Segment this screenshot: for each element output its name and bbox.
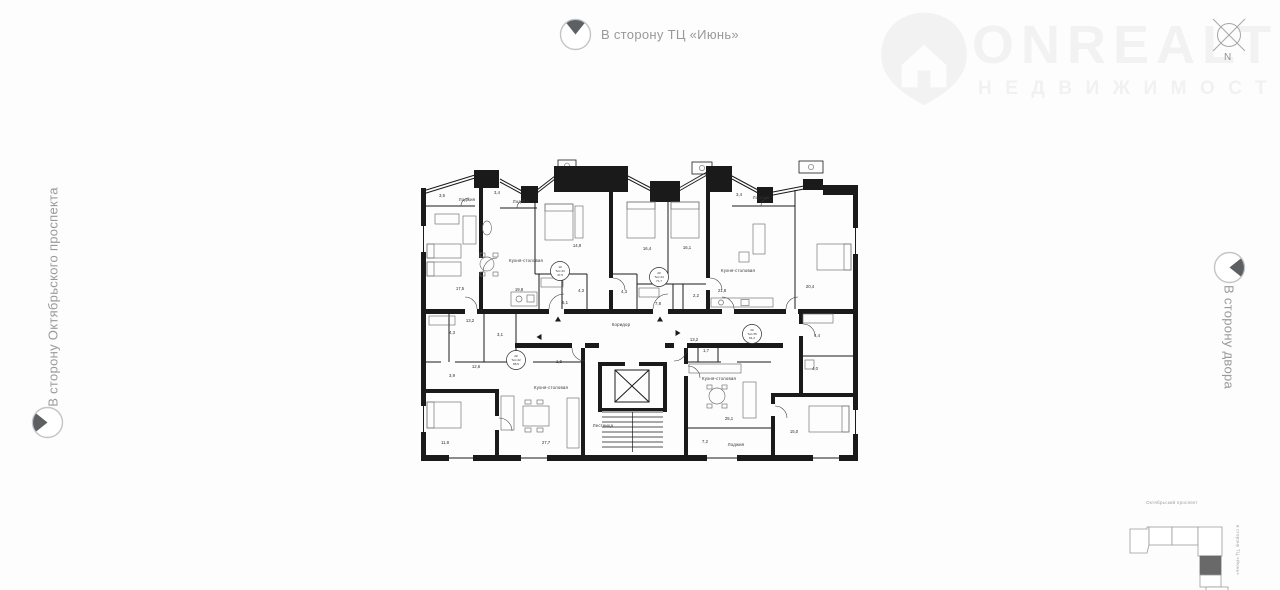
entry-arrow-up: [657, 317, 663, 322]
elevator: [615, 370, 649, 402]
minimap-street-label: Октябрьский проспект: [1146, 500, 1198, 505]
room-area-label: 17,5: [456, 286, 465, 291]
minimap-segment[interactable]: [1172, 527, 1198, 545]
minimap-segment[interactable]: [1130, 527, 1149, 553]
room-area-label: 13,2: [690, 337, 699, 342]
room-name-label: Коридор: [612, 322, 631, 327]
floor-plan[interactable]: 3,5Лоджия3,4Лоджия17,5Кухня-столовая19,8…: [421, 158, 858, 462]
entry-arrow-up: [555, 317, 561, 322]
minimap-side-label: в сторону ТЦ «Июнь»: [1236, 525, 1241, 575]
room-area-label: 4,4: [814, 333, 821, 338]
room-area-label: 13,2: [466, 318, 475, 323]
room-name-label: Кухня-столовая: [702, 376, 736, 381]
room-area-label: 19,8: [515, 287, 524, 292]
room-name-label: Лоджия: [753, 195, 770, 200]
apartment-tag-line: 81,2: [749, 336, 755, 340]
room-name-label: Лоджия: [459, 197, 476, 202]
apartment-tag[interactable]: 1КТип 3347,5: [551, 262, 570, 281]
minimap-segment[interactable]: [1200, 575, 1221, 587]
compass-icon: N: [1204, 12, 1254, 66]
room-area-label: 7,2: [702, 439, 709, 444]
room-area-label: 12,6: [472, 364, 481, 369]
direction-icon-left: [31, 406, 64, 439]
room-area-label: 4,3: [449, 330, 456, 335]
room-area-label: 11,8: [441, 440, 450, 445]
room-area-label: 2,2: [693, 293, 700, 298]
apartment-tag[interactable]: 2КТип 3581,2: [743, 325, 762, 344]
minimap-segment-active[interactable]: [1200, 556, 1221, 575]
room-name-label: Кухня-столовая: [534, 385, 568, 390]
plan-door-gaps: [421, 226, 858, 461]
room-area-label: 14,9: [573, 243, 582, 248]
room-area-label: 4,3: [578, 288, 585, 293]
direction-icon-right: [1213, 251, 1246, 284]
room-area-label: 4,0: [812, 366, 819, 371]
direction-label-left: В сторону Октябрьского проспекта: [46, 187, 61, 407]
room-area-label: 1,9: [556, 359, 563, 364]
room-area-label: 15,0: [790, 429, 799, 434]
room-area-label: 27,7: [542, 440, 551, 445]
room-area-label: 4,3: [621, 289, 628, 294]
room-area-label: 25,1: [725, 416, 734, 421]
room-area-label: 3,4: [494, 190, 501, 195]
staircase: [602, 412, 663, 452]
brand-subtitle: НЕДВИЖИМОСТЬ: [978, 78, 1280, 100]
plan-entry-arrows: [537, 317, 681, 341]
entry-arrow-right: [676, 330, 681, 336]
room-area-label: 1,7: [703, 348, 710, 353]
apartment-tag[interactable]: 2КТип 3286,5: [507, 351, 526, 370]
room-area-label: 3,5: [439, 193, 446, 198]
minimap-segment[interactable]: [1149, 527, 1172, 545]
room-name-label: Лестница: [593, 423, 614, 428]
apartment-tag-line: 86,5: [513, 362, 519, 366]
room-name-label: Кухня-столовая: [509, 258, 543, 263]
room-name-label: Лоджия: [513, 199, 530, 204]
apartment-tag-line: 71,7: [656, 279, 662, 283]
compass-north-label: N: [1224, 52, 1231, 63]
room-area-label: 16,4: [643, 246, 652, 251]
room-area-label: 7,8: [655, 301, 662, 306]
room-area-label: 3,1: [497, 332, 504, 337]
plan-furniture: [427, 202, 851, 448]
brand-pin-icon: [868, 6, 980, 110]
room-area-label: 5,1: [562, 300, 569, 305]
room-area-label: 21,8: [718, 288, 727, 293]
direction-label-top: В сторону ТЦ «Июнь»: [601, 27, 739, 42]
direction-icon-top: [559, 18, 592, 51]
minimap[interactable]: [1122, 508, 1242, 590]
entry-arrow-left: [537, 334, 542, 340]
room-area-label: 20,4: [806, 284, 815, 289]
page: { "directions": { "top": { "label": "В с…: [0, 0, 1280, 590]
apartment-tag[interactable]: 2КТип 3471,7: [650, 268, 669, 287]
room-area-label: 3,9: [449, 373, 456, 378]
room-name-label: Лоджия: [728, 442, 745, 447]
room-area-label: 3,4: [736, 192, 743, 197]
apartment-tag-line: 47,5: [557, 273, 563, 277]
room-name-label: Кухня-столовая: [721, 268, 755, 273]
room-area-label: 16,1: [683, 245, 692, 250]
minimap-segment[interactable]: [1198, 527, 1222, 556]
direction-label-right: В сторону двора: [1222, 285, 1237, 389]
